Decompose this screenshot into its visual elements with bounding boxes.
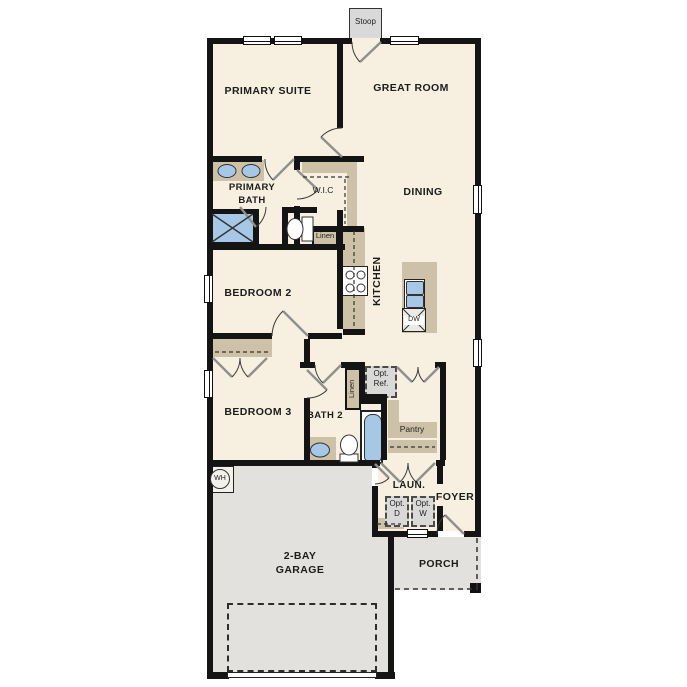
great-room-label: GREAT ROOM [366,81,456,95]
bedroom2-label: BEDROOM 2 [213,286,303,300]
kitchen-label: KITCHEN [370,250,392,312]
linen-primary-label: Linen [313,231,337,240]
wall-segment [207,244,345,250]
wall-segment [308,333,342,339]
bedroom3-closet-shelf [213,339,272,357]
wall-segment [304,398,310,460]
window [274,36,302,45]
wall-segment [207,156,262,162]
shower [210,212,255,244]
wall-segment [207,333,272,339]
garage-label: 2-BAY GARAGE [265,549,335,577]
porch-label: PORCH [404,557,474,571]
window [204,370,213,398]
wall-segment [359,366,365,396]
primary-bath-label: PRIMARY BATH [217,182,287,208]
window [407,529,428,538]
wall-segment [207,303,213,370]
wall-segment [388,531,394,679]
wall-segment [419,38,481,44]
wall-segment [207,460,380,466]
bedroom3-label: BEDROOM 3 [213,405,303,419]
primary-vanity-counter [213,160,264,181]
stoop-door-opening [352,38,380,44]
wall-segment [294,206,300,248]
opt-ref-label: Opt. Ref. [367,369,395,389]
window [204,275,213,303]
wall-segment [440,362,446,460]
wall-segment [207,398,213,679]
pantry-lower-shelf [388,440,437,453]
window [390,36,419,45]
garage-door-swing-outline [227,603,377,672]
wall-segment [427,531,438,537]
wall-segment [337,210,343,329]
wall-segment [337,44,343,128]
dining-label: DINING [388,185,458,199]
wall-segment [282,207,288,250]
island-sink-basin-bottom [406,295,424,308]
wall-segment [207,38,213,275]
wall-segment [437,506,443,531]
wall-segment [302,38,352,44]
wall-segment [343,329,365,335]
water-heater-label: WH [208,475,232,484]
porch-post [470,583,481,593]
tub-basin [364,414,382,462]
island-sink-basin-top [406,281,424,295]
wall-segment [337,156,364,162]
wall-segment [475,214,481,339]
window [243,36,271,45]
bath2-label: BATH 2 [303,410,347,423]
wall-segment [372,486,378,531]
wall-segment [294,162,300,170]
wall-segment [253,209,259,249]
linen-hall-label: Linen [347,372,359,406]
wall-segment [207,209,259,214]
dishwasher-label: DW [404,316,424,325]
wall-segment [475,38,481,185]
wall-segment [372,460,378,468]
wic-label: W.I.C [299,185,347,196]
stove [341,266,368,296]
primary-suite-label: PRIMARY SUITE [218,84,318,98]
wic-shelf-right [347,162,357,230]
window [473,339,482,367]
window [473,185,482,214]
stoop-label: Stoop [349,17,382,27]
wall-segment [304,339,310,366]
wall-segment [475,367,481,537]
pantry-label: Pantry [382,424,442,435]
floor-plan: Stoop PRIMARY SUITE GREAT ROOM DINING PR… [0,0,687,687]
garage-door-sill [227,672,377,678]
wall-segment [380,38,390,44]
opt-dryer-label: Opt. D [386,499,408,519]
foyer-label: FOYER [420,490,490,504]
